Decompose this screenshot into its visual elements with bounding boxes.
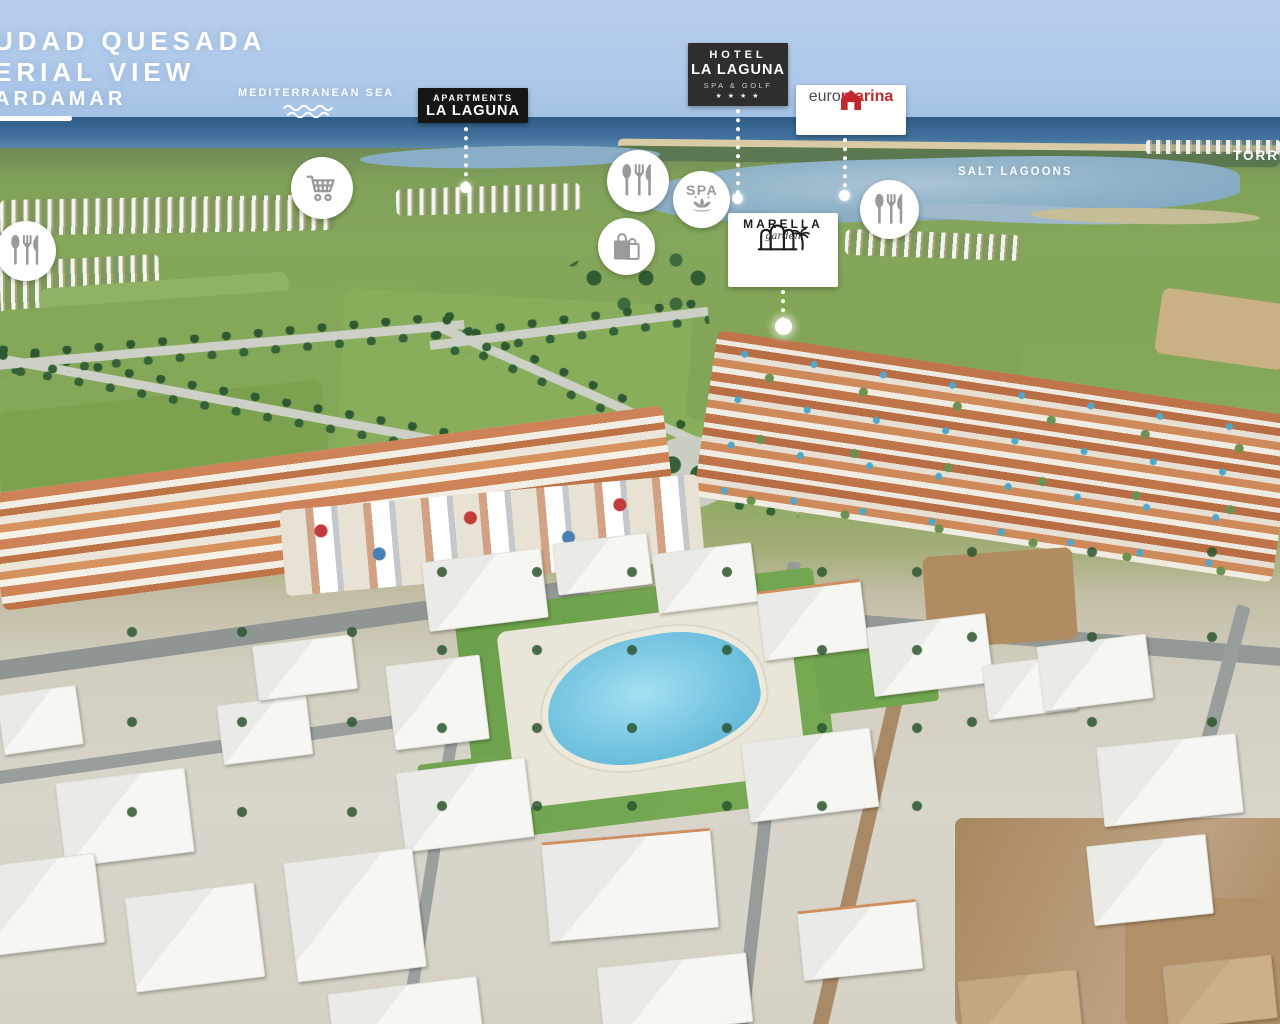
restaurant-icon [7,232,45,270]
building-block [0,853,105,957]
connector-dotted-line [843,138,847,190]
page-title-line1: UDAD QUESADA [0,26,266,57]
waves-icon [282,103,334,120]
apartments-label-line2: LA LAGUNA [418,103,528,119]
building-block [652,542,759,614]
connector-dotted-line [464,127,468,183]
mediterranean-sea-label: MEDITERRANEAN SEA [238,87,394,99]
amenity-marker-restaurant [860,180,919,239]
amenity-marker-shopping [598,218,655,275]
salt-lagoons-label: SALT LAGOONS [958,166,1073,178]
restaurant-icon [618,161,658,201]
hotel-la-laguna-label: HOTEL LA LAGUNA SPA & GOLF ★ ★ ★ ★ [688,43,788,106]
location-dot [839,190,850,201]
apartments-la-laguna-label: APARTMENTS LA LAGUNA [418,88,528,123]
euromarina-word-euro: euro [809,88,841,105]
building-block [741,727,880,822]
building-block [756,579,869,661]
torrevieja-label: TORRE [1233,148,1280,163]
location-dot [732,193,743,204]
euromarina-house-icon [838,88,864,112]
building-block [0,685,84,756]
building-block [1096,733,1244,827]
euromarina-logo-box: euromarina [796,85,906,135]
building-block [1086,834,1214,926]
building-block [217,695,314,766]
building-under-construction [1162,954,1278,1024]
building-block [1036,634,1153,712]
hotel-label-line3: SPA & GOLF [688,81,788,90]
building-block [541,828,719,942]
marella-garden-label: MARELLA garden [728,213,838,287]
distant-urbanisation [0,194,335,236]
location-dot [460,182,471,193]
building-block [866,613,994,697]
location-dot [775,318,792,335]
building-block [421,548,549,632]
marella-arches-palm-icon [755,217,811,255]
apartments-label-line1: APARTMENTS [418,93,528,103]
page-title-line2: ERIAL VIEW [0,57,195,88]
building-block [385,655,490,751]
hotel-label-line2: LA LAGUNA [688,62,788,78]
building-block [396,757,535,852]
guardamar-direction-bar [0,116,72,121]
building-block [283,848,427,983]
shopping-bags-icon [608,228,646,266]
hotel-label-line1: HOTEL [688,49,788,61]
aerial-photo-scene: UDAD QUESADA ERIAL VIEW ARDAMAR MEDITERR… [0,0,1280,1024]
connector-dotted-line [736,109,740,193]
amenity-marker-spa [673,171,730,228]
supermarket-cart-icon [302,168,342,208]
amenity-marker-restaurant [607,150,669,212]
building-block [797,899,924,981]
building-block [55,767,194,867]
hotel-stars: ★ ★ ★ ★ [688,92,788,100]
building-block [125,882,266,992]
guardamar-label: ARDAMAR [0,88,126,111]
amenity-marker-supermarket [291,157,353,219]
spa-icon [680,178,724,222]
restaurant-icon [871,191,909,229]
connector-dotted-line [781,290,785,318]
